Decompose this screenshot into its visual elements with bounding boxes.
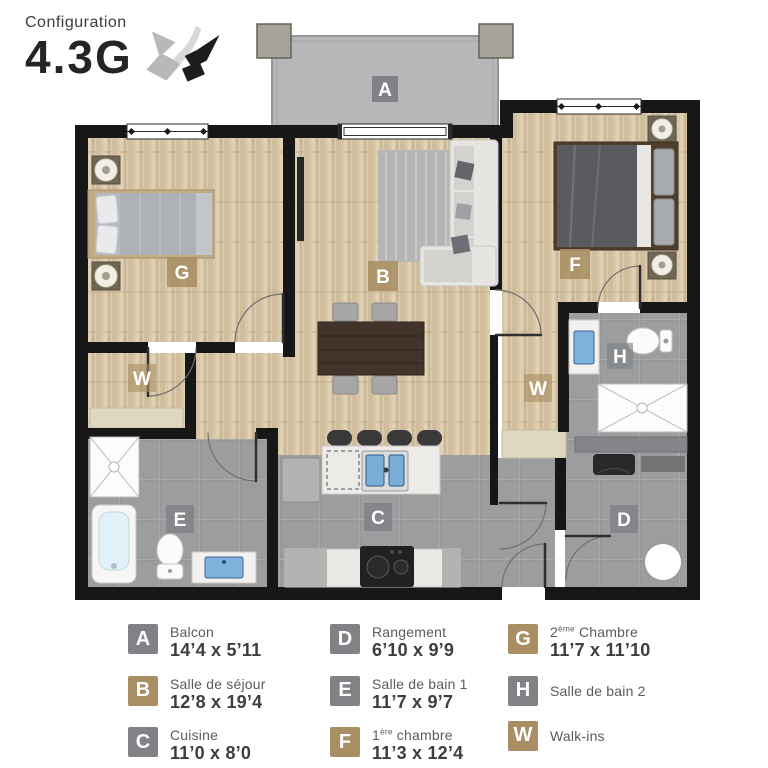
patio-door bbox=[338, 124, 452, 139]
rug bbox=[378, 150, 456, 262]
burner bbox=[367, 556, 389, 578]
legend-item-f: F 1ère chambre 11’3 x 12’4 bbox=[330, 727, 530, 765]
legend-letter-d: D bbox=[330, 624, 360, 654]
kitchen-lower-counter bbox=[285, 546, 460, 587]
legend-name: Rangement bbox=[372, 624, 454, 640]
toilet-h bbox=[627, 328, 672, 354]
shower-h bbox=[598, 384, 687, 432]
header: Configuration 4.3G bbox=[25, 14, 133, 80]
room-label-d: D bbox=[610, 505, 638, 533]
water-heater bbox=[644, 543, 682, 581]
balcony-pillar bbox=[257, 24, 291, 58]
svg-text:F: F bbox=[569, 255, 581, 276]
legend-column-1: A Balcon 14’4 x 5’11 B Salle de séjour 1… bbox=[128, 624, 328, 768]
room-label-f: F bbox=[560, 249, 590, 279]
legend-item-w: W Walk-ins bbox=[508, 721, 708, 752]
sink-basin bbox=[366, 455, 384, 486]
vanity-e bbox=[192, 552, 256, 583]
pillow bbox=[96, 225, 118, 254]
legend-dims: 14’4 x 5’11 bbox=[170, 640, 261, 662]
chair bbox=[372, 376, 397, 394]
bar-stool bbox=[387, 430, 412, 446]
legend-name: 2ème Chambre bbox=[550, 624, 651, 640]
legend-letter-f: F bbox=[330, 727, 360, 757]
balcony-pillar bbox=[479, 24, 513, 58]
room-label-b: B bbox=[368, 261, 398, 291]
room-label-e: E bbox=[166, 505, 194, 533]
svg-text:C: C bbox=[371, 508, 385, 529]
chair bbox=[333, 376, 358, 394]
legend-letter-g: G bbox=[508, 624, 538, 654]
sink-basin bbox=[389, 455, 404, 486]
window-f bbox=[557, 99, 641, 114]
legend-name: Cuisine bbox=[170, 727, 251, 743]
legend-letter-e: E bbox=[330, 676, 360, 706]
svg-text:H: H bbox=[613, 347, 627, 368]
kitchen-island bbox=[322, 446, 440, 494]
throw-pillow bbox=[455, 203, 472, 220]
pillow bbox=[96, 195, 118, 224]
throw-pillow bbox=[454, 161, 474, 181]
configuration-label: Configuration bbox=[25, 14, 133, 32]
room-label-c: C bbox=[364, 503, 392, 531]
faucet bbox=[384, 468, 389, 473]
svg-text:B: B bbox=[376, 267, 390, 288]
storage-shelf bbox=[575, 437, 687, 452]
legend-dims: 11’7 x 11’10 bbox=[550, 640, 651, 662]
chair bbox=[372, 303, 397, 321]
chair bbox=[333, 303, 358, 321]
walkin-shelf bbox=[502, 430, 566, 458]
legend-letter-b: B bbox=[128, 676, 158, 706]
throw-pillow bbox=[451, 235, 471, 255]
configuration-code: 4.3G bbox=[25, 34, 133, 80]
legend-item-e: E Salle de bain 1 11’7 x 9’7 bbox=[330, 676, 530, 714]
vanity-h bbox=[569, 320, 599, 374]
svg-text:E: E bbox=[174, 510, 187, 531]
pillow bbox=[654, 199, 674, 245]
room-label-h: H bbox=[607, 343, 633, 369]
dining-table bbox=[318, 322, 424, 375]
toilet-e bbox=[157, 534, 183, 579]
room-label-w-right: W bbox=[524, 374, 552, 402]
bar-stool bbox=[327, 430, 352, 446]
legend-column-2: D Rangement 6’10 x 9’9 E Salle de bain 1… bbox=[330, 624, 530, 768]
bathtub bbox=[92, 505, 136, 583]
burner bbox=[394, 560, 408, 574]
pillow bbox=[654, 149, 674, 195]
legend-dims: 11’3 x 12’4 bbox=[372, 743, 463, 765]
legend-name: Salle de bain 2 bbox=[550, 683, 646, 699]
window-g bbox=[127, 124, 208, 139]
legend-name: 1ère chambre bbox=[372, 727, 463, 743]
legend-letter-a: A bbox=[128, 624, 158, 654]
svg-text:A: A bbox=[378, 80, 392, 101]
legend-item-d: D Rangement 6’10 x 9’9 bbox=[330, 624, 530, 662]
legend-dims: 6’10 x 9’9 bbox=[372, 640, 454, 662]
legend-column-3: G 2ème Chambre 11’7 x 11’10 H Salle de b… bbox=[508, 624, 708, 766]
legend-name: Salle de bain 1 bbox=[372, 676, 468, 692]
legend-letter-w: W bbox=[508, 721, 538, 751]
legend-item-h: H Salle de bain 2 bbox=[508, 676, 708, 707]
bar-stool bbox=[357, 430, 382, 446]
bed-f bbox=[554, 142, 678, 250]
room-label-w-left: W bbox=[128, 364, 156, 392]
legend-name: Salle de séjour bbox=[170, 676, 266, 692]
dryer-mat bbox=[641, 456, 685, 472]
legend-letter-h: H bbox=[508, 676, 538, 706]
svg-text:W: W bbox=[133, 369, 151, 390]
entry-opening bbox=[502, 587, 545, 600]
legend-item-g: G 2ème Chambre 11’7 x 11’10 bbox=[508, 624, 708, 662]
brand-logo-icon bbox=[138, 24, 226, 88]
room-label-a: A bbox=[372, 76, 398, 102]
bar-stool bbox=[417, 430, 442, 446]
bed-g bbox=[88, 190, 214, 258]
legend-item-c: C Cuisine 11’0 x 8’0 bbox=[128, 727, 328, 765]
floorplan-drawing: A G B F W W H bbox=[0, 0, 768, 612]
kitchen-counter bbox=[282, 458, 320, 502]
floorplan-page: Configuration 4.3G bbox=[0, 0, 768, 768]
shower-e bbox=[90, 437, 139, 497]
tv bbox=[297, 157, 304, 241]
legend-item-a: A Balcon 14’4 x 5’11 bbox=[128, 624, 328, 662]
legend-item-b: B Salle de séjour 12’8 x 19’4 bbox=[128, 676, 328, 714]
legend-dims: 12’8 x 19’4 bbox=[170, 692, 266, 714]
svg-text:W: W bbox=[529, 379, 547, 400]
legend-name: Walk-ins bbox=[550, 728, 605, 744]
svg-text:G: G bbox=[175, 263, 190, 284]
walkin-shelf bbox=[90, 408, 183, 428]
legend-dims: 11’7 x 9’7 bbox=[372, 692, 468, 714]
svg-text:D: D bbox=[617, 510, 631, 531]
legend-letter-c: C bbox=[128, 727, 158, 757]
legend-dims: 11’0 x 8’0 bbox=[170, 743, 251, 765]
room-label-g: G bbox=[167, 257, 197, 287]
legend-name: Balcon bbox=[170, 624, 261, 640]
